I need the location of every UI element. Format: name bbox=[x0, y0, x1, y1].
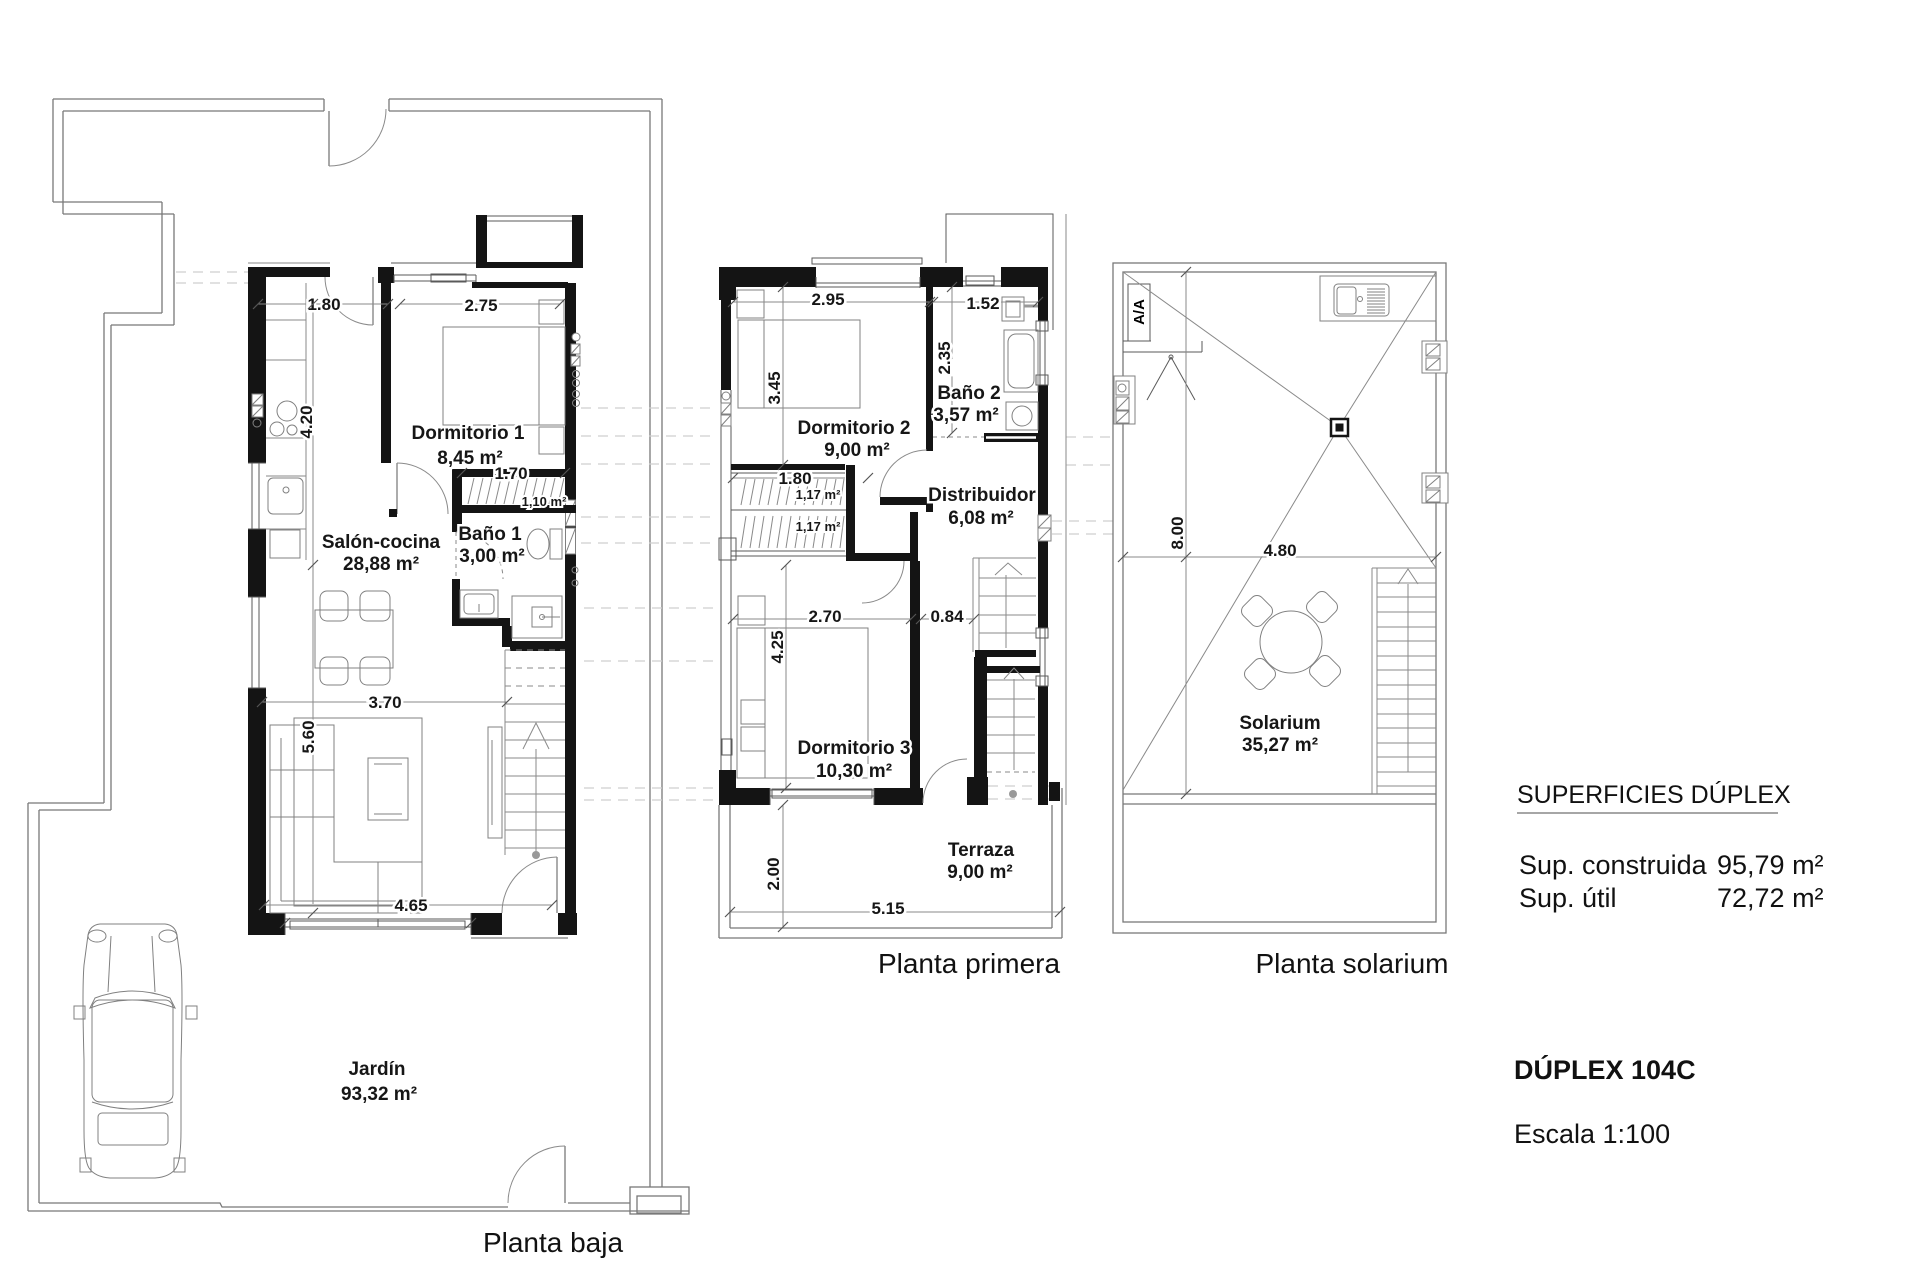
svg-text:4.65: 4.65 bbox=[394, 896, 427, 915]
svg-text:3,57 m²: 3,57 m² bbox=[933, 405, 998, 426]
svg-text:6,08 m²: 6,08 m² bbox=[948, 508, 1013, 529]
svg-text:35,27 m²: 35,27 m² bbox=[1242, 735, 1318, 756]
svg-text:Planta solarium: Planta solarium bbox=[1256, 948, 1449, 979]
svg-text:9,00 m²: 9,00 m² bbox=[947, 862, 1012, 883]
svg-text:9,00 m²: 9,00 m² bbox=[824, 440, 889, 461]
svg-text:3.45: 3.45 bbox=[765, 371, 784, 404]
svg-text:72,72 m²: 72,72 m² bbox=[1717, 883, 1824, 913]
svg-text:Sup. construida: Sup. construida bbox=[1519, 850, 1708, 880]
svg-text:10,30 m²: 10,30 m² bbox=[816, 761, 892, 782]
svg-text:Dormitorio 2: Dormitorio 2 bbox=[798, 418, 911, 439]
svg-text:A/A: A/A bbox=[1131, 299, 1148, 325]
svg-text:Terraza: Terraza bbox=[948, 840, 1015, 861]
svg-text:4.25: 4.25 bbox=[768, 630, 787, 663]
svg-text:1,17 m²: 1,17 m² bbox=[796, 487, 841, 502]
svg-text:3,00 m²: 3,00 m² bbox=[459, 546, 524, 567]
svg-text:Salón-cocina: Salón-cocina bbox=[322, 532, 441, 553]
svg-text:93,32 m²: 93,32 m² bbox=[341, 1084, 417, 1105]
svg-text:DÚPLEX 104C: DÚPLEX 104C bbox=[1514, 1054, 1696, 1085]
svg-text:Dormitorio 3: Dormitorio 3 bbox=[798, 738, 911, 759]
svg-text:Dormitorio 1: Dormitorio 1 bbox=[412, 423, 525, 444]
svg-text:2.35: 2.35 bbox=[935, 341, 954, 374]
svg-text:2.75: 2.75 bbox=[464, 296, 497, 315]
svg-text:Planta primera: Planta primera bbox=[878, 948, 1061, 979]
svg-text:3.70: 3.70 bbox=[368, 693, 401, 712]
svg-text:8,45 m²: 8,45 m² bbox=[437, 448, 502, 469]
svg-text:0.84: 0.84 bbox=[930, 607, 964, 626]
svg-text:Escala 1:100: Escala 1:100 bbox=[1514, 1119, 1670, 1149]
svg-text:28,88 m²: 28,88 m² bbox=[343, 554, 419, 575]
svg-text:5.60: 5.60 bbox=[299, 720, 318, 753]
svg-text:Jardín: Jardín bbox=[348, 1059, 405, 1080]
svg-text:Planta baja: Planta baja bbox=[483, 1227, 624, 1258]
svg-text:Baño 1: Baño 1 bbox=[458, 524, 522, 545]
svg-text:SUPERFICIES DÚPLEX: SUPERFICIES DÚPLEX bbox=[1517, 780, 1791, 809]
svg-text:Baño 2: Baño 2 bbox=[937, 383, 1000, 404]
svg-text:1.80: 1.80 bbox=[778, 469, 811, 488]
svg-text:95,79 m²: 95,79 m² bbox=[1717, 850, 1824, 880]
svg-text:Distribuidor: Distribuidor bbox=[928, 485, 1036, 506]
svg-text:1,10 m²: 1,10 m² bbox=[522, 494, 567, 509]
svg-text:Solarium: Solarium bbox=[1239, 713, 1320, 734]
svg-text:8.00: 8.00 bbox=[1168, 516, 1187, 549]
svg-text:2.95: 2.95 bbox=[811, 290, 844, 309]
svg-text:2.70: 2.70 bbox=[808, 607, 841, 626]
svg-text:4.80: 4.80 bbox=[1263, 541, 1296, 560]
svg-text:4.20: 4.20 bbox=[297, 405, 316, 438]
svg-text:5.15: 5.15 bbox=[871, 899, 904, 918]
svg-text:2.00: 2.00 bbox=[764, 857, 783, 890]
svg-text:1,17 m²: 1,17 m² bbox=[796, 519, 841, 534]
svg-text:1.52: 1.52 bbox=[966, 294, 999, 313]
svg-text:Sup. útil: Sup. útil bbox=[1519, 883, 1617, 913]
